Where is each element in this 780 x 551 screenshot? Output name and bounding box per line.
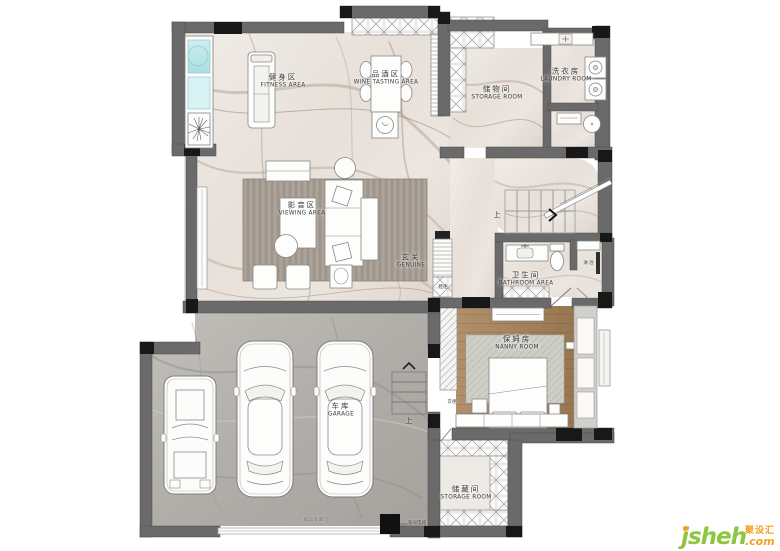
treadmill xyxy=(248,52,275,128)
label-storage-top-zh: 储物间 xyxy=(471,84,522,94)
powder-counter xyxy=(557,113,581,124)
label-wine-tasting: 品酒区 WINE TASTING AREA xyxy=(354,69,419,86)
label-garage-zh: 车库 xyxy=(328,401,354,411)
power-box-icon xyxy=(380,514,400,534)
storage-bottom-floor xyxy=(438,456,490,510)
side-table xyxy=(330,265,352,288)
label-fitness-zh: 健身区 xyxy=(260,72,305,82)
hall-floor xyxy=(450,158,498,306)
label-fitness-en: FITNESS AREA xyxy=(260,82,305,90)
label-wine-zh: 品酒区 xyxy=(354,69,419,79)
label-laundry-zh: 洗衣房 xyxy=(540,66,591,76)
logo-dot-icon xyxy=(683,526,688,531)
nightstand xyxy=(472,399,487,413)
shower-label: 淋浴 xyxy=(583,260,594,266)
label-storage-top: 储物间 STORAGE ROOM xyxy=(471,84,522,101)
storage-shelf-top xyxy=(438,440,508,456)
wardrobe-label: 衣柜 xyxy=(447,399,456,405)
label-viewing-en: VIEWING AREA xyxy=(279,210,326,218)
stairs-up-label: 上 xyxy=(494,210,501,220)
ottoman xyxy=(253,265,277,289)
nanny-window xyxy=(599,330,610,386)
logo-tld-text: .com xyxy=(745,536,775,547)
site-logo[interactable]: jsheh 聚设汇 .com xyxy=(681,527,775,548)
sofa-chaise xyxy=(361,198,378,260)
label-bathroom-en: BATHROOM AREA xyxy=(499,280,554,288)
wine-cabinet-top xyxy=(352,18,438,35)
label-nanny-zh: 保姆房 xyxy=(495,334,539,344)
label-bathroom: 卫生间 BATHROOM AREA xyxy=(499,270,554,287)
garage-stairs-up-label: 上 xyxy=(406,416,413,426)
label-viewing: 影音区 VIEWING AREA xyxy=(279,200,326,217)
label-viewing-zh: 影音区 xyxy=(279,200,326,210)
nightstand xyxy=(549,404,560,415)
label-wine-en: WINE TASTING AREA xyxy=(354,79,419,87)
label-storage-bottom: 储藏间 STORAGE ROOM xyxy=(440,484,491,501)
shower-shelf xyxy=(577,241,600,250)
garage-door-label: 电动车库门 xyxy=(303,517,328,524)
logo-text: jsheh xyxy=(681,528,746,548)
sink xyxy=(517,248,533,258)
car xyxy=(161,376,219,494)
nanny-closet xyxy=(440,306,457,390)
pillow xyxy=(332,242,351,261)
label-fitness: 健身区 FITNESS AREA xyxy=(260,72,305,89)
toilet xyxy=(551,252,564,271)
label-garage-en: GARAGE xyxy=(328,411,354,419)
car xyxy=(314,341,376,497)
label-bathroom-zh: 卫生间 xyxy=(499,270,554,280)
toilet-tank xyxy=(550,244,564,251)
storage-shelf-right xyxy=(490,456,508,510)
label-storage-top-en: STORAGE ROOM xyxy=(471,94,522,102)
label-entrance: 玄关 GENUINE xyxy=(397,252,426,269)
label-garage: 车库 GARAGE xyxy=(328,401,354,418)
storage-door xyxy=(441,429,451,441)
floor-plan-page: 健身区 FITNESS AREA 品酒区 WINE TASTING AREA 储… xyxy=(0,0,780,551)
storage-cabinet-v xyxy=(448,48,466,112)
towel-radiator xyxy=(596,252,600,274)
label-storage-bottom-zh: 储藏间 xyxy=(440,484,491,494)
pouf xyxy=(335,158,356,179)
power-box-label: 强弱电箱 xyxy=(408,520,426,526)
shoe-cabinet-label: 鞋柜 xyxy=(438,284,447,290)
label-storage-bottom-en: STORAGE ROOM xyxy=(440,494,491,502)
label-entrance-zh: 玄关 xyxy=(397,252,426,262)
plant-icon xyxy=(188,113,210,145)
storage-shelf-bottom xyxy=(438,510,508,526)
label-nanny: 保姆房 NANNY ROOM xyxy=(495,334,539,351)
label-entrance-en: GENUINE xyxy=(397,262,426,270)
car xyxy=(234,341,296,497)
label-nanny-en: NANNY ROOM xyxy=(495,344,539,352)
ottoman xyxy=(286,265,310,289)
round-side-table xyxy=(275,235,298,258)
label-laundry-en: LAUNDRY ROOM xyxy=(540,76,591,84)
window-glass xyxy=(188,77,210,109)
label-laundry: 洗衣房 LAUNDRY ROOM xyxy=(540,66,591,83)
bath-bench xyxy=(503,286,549,298)
window-glass xyxy=(188,40,210,73)
